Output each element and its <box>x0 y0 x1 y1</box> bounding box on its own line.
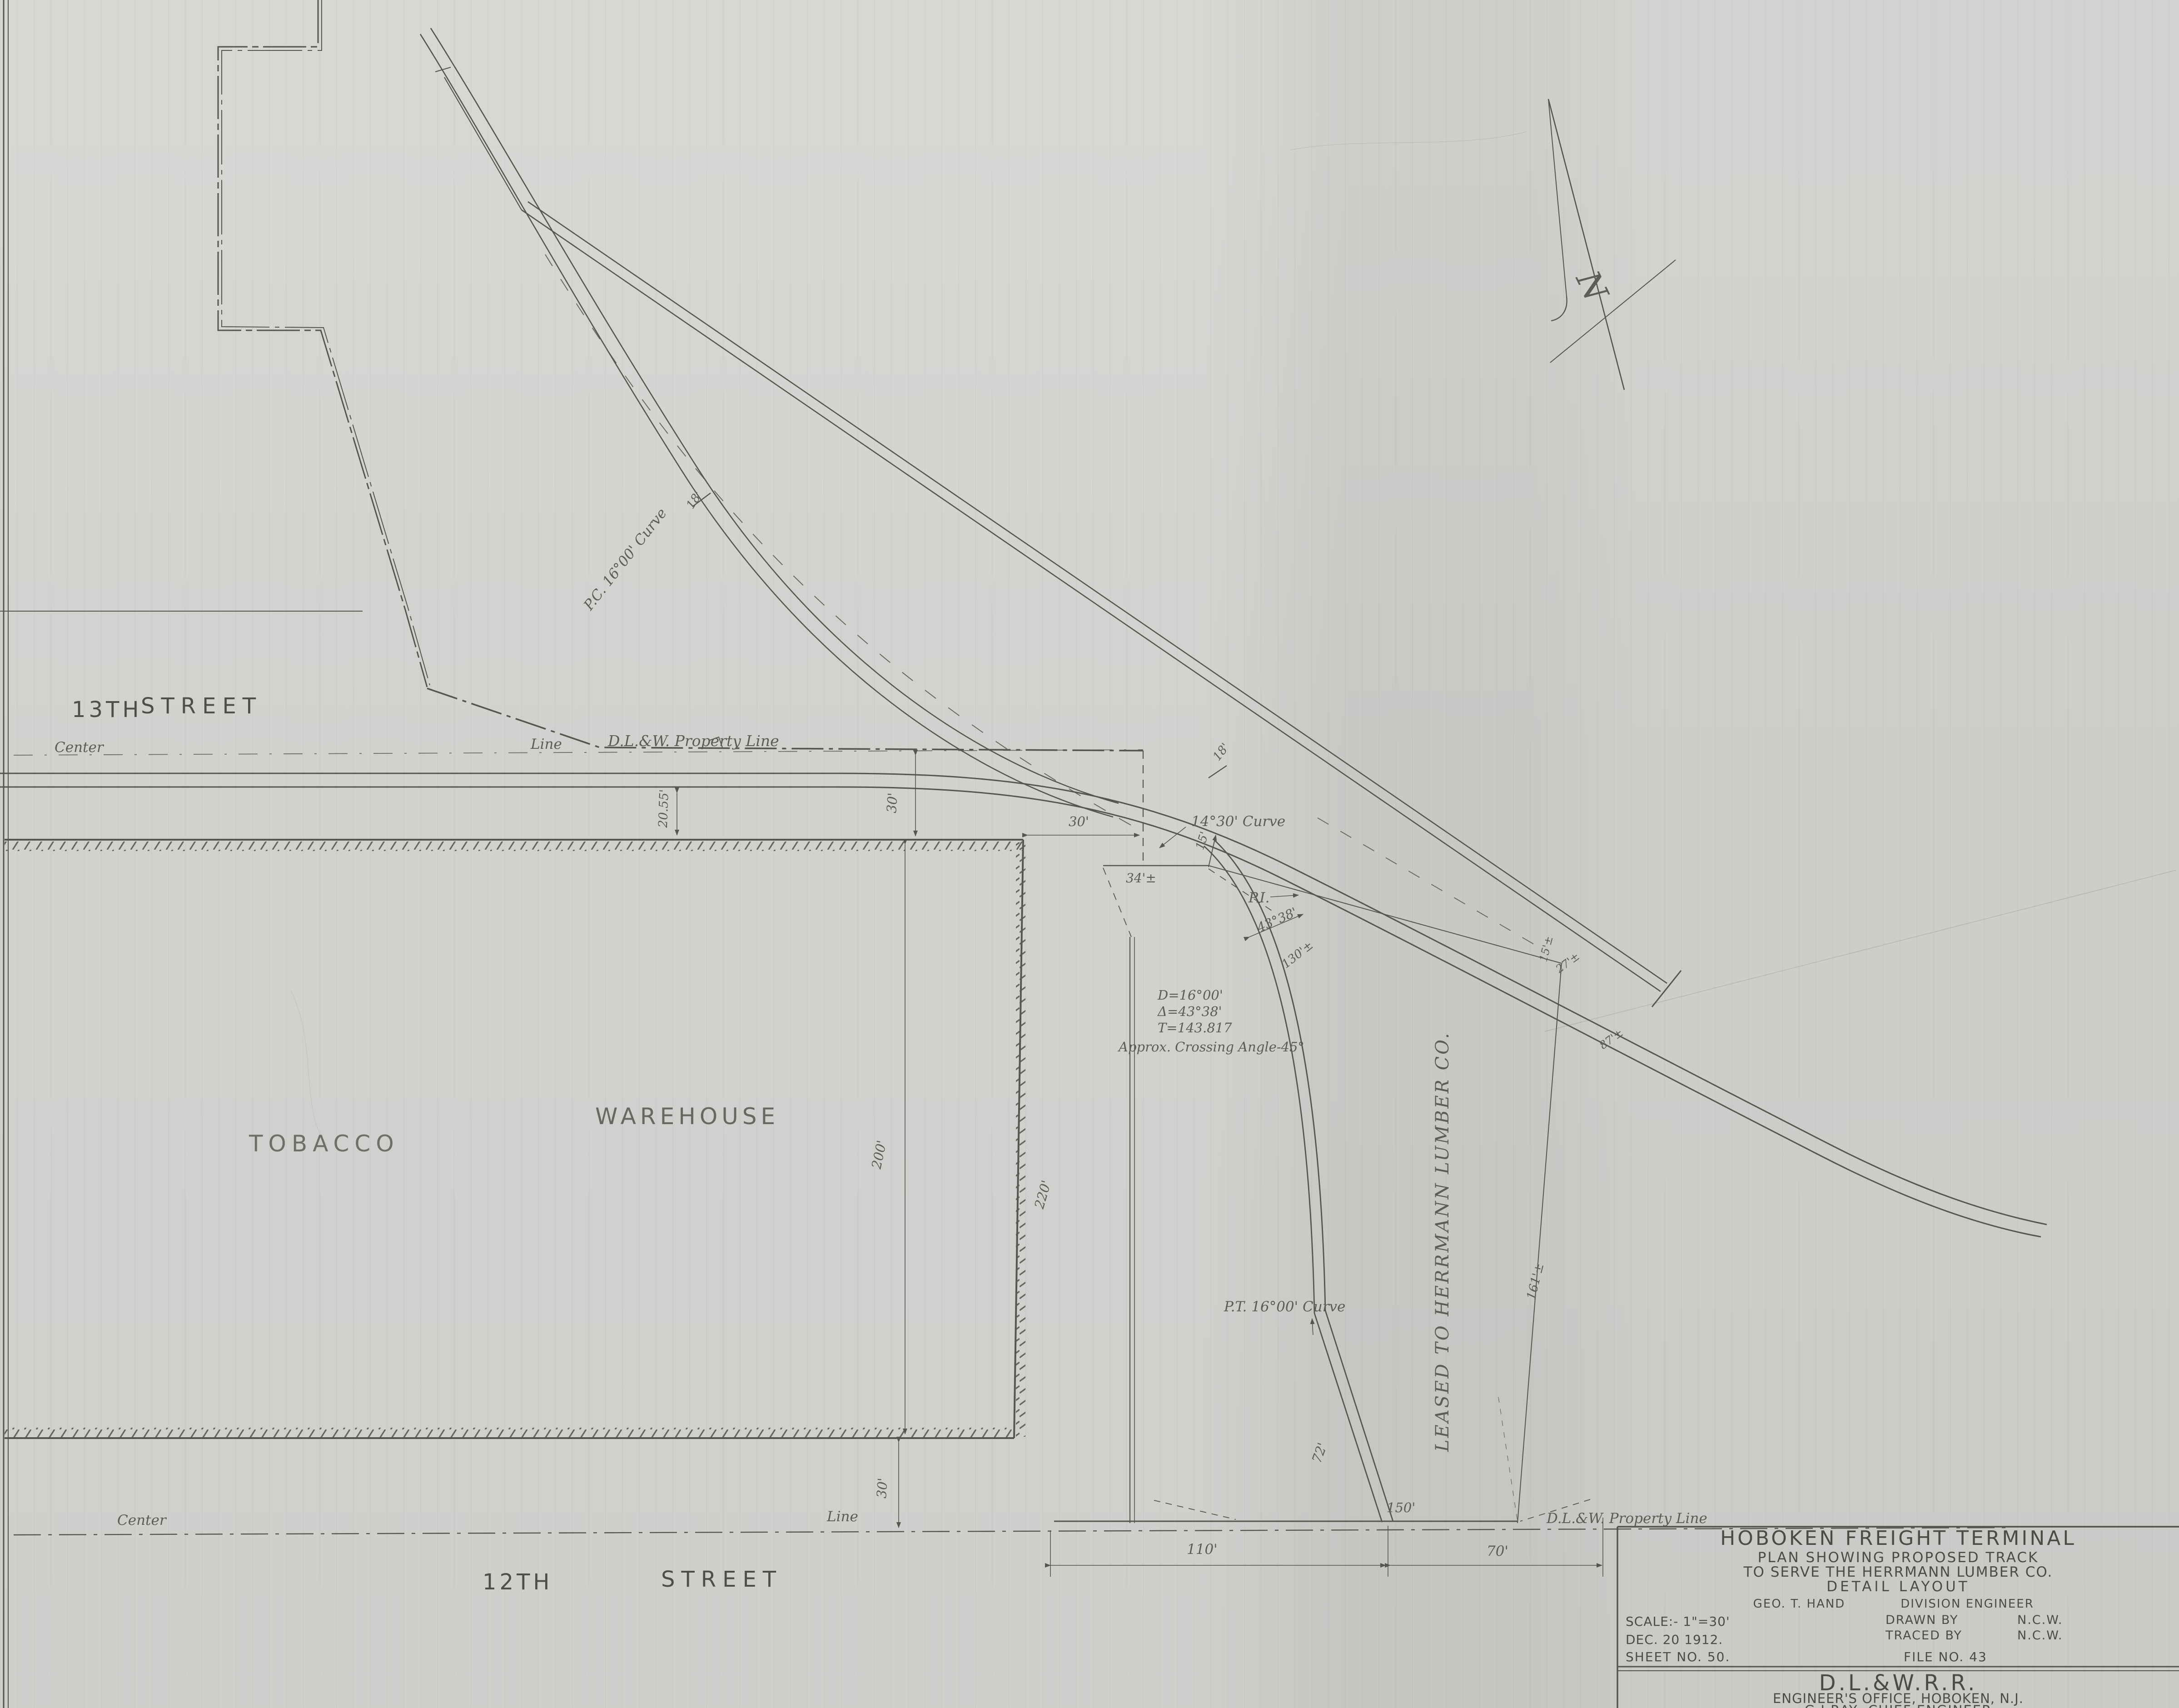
curve-notes: P.C. 16°00' Curve 14°30' Curve P.I. 43°3… <box>580 505 1345 1315</box>
title-engineer-name: GEO. T. HAND <box>1753 1597 1846 1611</box>
warehouse-outline <box>5 840 1025 1438</box>
building-tobacco: TOBACCO <box>249 1130 399 1157</box>
dim-72: 72' <box>1309 1441 1330 1465</box>
title-line-2: PLAN SHOWING PROPOSED TRACK <box>1758 1549 2039 1566</box>
street-12-center: Center <box>117 1512 167 1529</box>
title-traced-by-label: TRACED BY <box>1885 1628 1962 1643</box>
block-boundary <box>218 0 430 687</box>
note-eq-delta: Δ=43°38' <box>1157 1004 1222 1019</box>
title-line-3: TO SERVE THE HERRMANN LUMBER CO. <box>1743 1564 2053 1580</box>
twelfth-street <box>14 1528 2008 1535</box>
dim-20-55: 20.55' <box>656 789 672 828</box>
title-block: HOBOKEN FREIGHT TERMINAL PLAN SHOWING PR… <box>1617 1527 2179 1708</box>
dim-34: 34'± <box>1126 871 1156 886</box>
title-engineer-title: DIVISION ENGINEER <box>1900 1597 2034 1611</box>
dim-30-prop: 30' <box>884 792 900 813</box>
note-crossing-angle: Approx. Crossing Angle-45° <box>1117 1039 1304 1055</box>
note-eq-t: T=143.817 <box>1158 1020 1232 1036</box>
note-eq-d: D=16°00' <box>1157 987 1223 1003</box>
title-date: DEC. 20 1912. <box>1626 1632 1723 1647</box>
property-line-label-top: D.L.&W. Property Line <box>607 732 779 750</box>
dim-15b: 15'± <box>1537 935 1556 963</box>
dim-18-a: 18' <box>684 489 705 512</box>
title-file-no: FILE NO. 43 <box>1904 1649 1987 1664</box>
dim-150: 150' <box>1387 1500 1415 1515</box>
title-line-4: DETAIL LAYOUT <box>1826 1579 1970 1595</box>
title-scale: SCALE:- 1"=30' <box>1626 1614 1730 1629</box>
street-13-number: 13TH <box>72 697 142 722</box>
note-1430-curve: 14°30' Curve <box>1191 813 1285 830</box>
title-traced-by: N.C.W. <box>2017 1628 2063 1643</box>
property-line-label-bottom: D.L.&W. Property Line <box>1546 1510 1707 1527</box>
paper-creases <box>291 132 2176 1145</box>
north-letter: N <box>1568 264 1616 309</box>
plan-drawing: N 13TH STREET Center Line 12TH STREET Ce… <box>0 0 2179 1708</box>
street-13-line: Line <box>530 736 562 752</box>
dim-110: 110' <box>1187 1541 1218 1558</box>
dim-200: 200' <box>868 1139 890 1170</box>
note-pt-curve: P.T. 16°00' Curve <box>1224 1299 1345 1315</box>
title-drawn-by: N.C.W. <box>2017 1613 2063 1627</box>
dim-161: 161'± <box>1524 1262 1547 1301</box>
dim-15: 15' <box>1193 830 1212 852</box>
dim-30-corner: 30' <box>1069 814 1089 829</box>
title-drawn-by-label: DRAWN BY <box>1885 1613 1958 1627</box>
north-arrow: N <box>1548 99 1676 390</box>
lease-note: LEASED TO HERRMANN LUMBER CO. <box>1432 1031 1453 1452</box>
street-13-name: STREET <box>141 693 262 719</box>
sheet-border <box>4 0 8 1708</box>
title-sheet-no: SHEET NO. 50. <box>1626 1649 1730 1664</box>
note-pc-curve: P.C. 16°00' Curve <box>580 505 670 614</box>
building-warehouse: WAREHOUSE <box>595 1103 779 1130</box>
street-12-number: 12TH <box>483 1569 553 1595</box>
dim-18-b: 18' <box>1210 741 1232 763</box>
street-13-center: Center <box>55 739 104 756</box>
title-chief: G.J.RAY CHIEF ENGINEER <box>1805 1703 1992 1708</box>
dim-27: 27'± <box>1553 950 1582 976</box>
lease-boundary <box>1054 751 1590 1523</box>
dimension-labels: 20.55' 30' 30' 34'± 15' 18' 18' 15'± 27'… <box>656 489 1626 1559</box>
dim-220: 220' <box>1031 1179 1054 1211</box>
thirteenth-street <box>0 611 1143 755</box>
dim-70: 70' <box>1487 1543 1508 1559</box>
street-12-name: STREET <box>661 1567 782 1592</box>
title-line-1: HOBOKEN FREIGHT TERMINAL <box>1720 1527 2076 1550</box>
dim-30-bottom: 30' <box>874 1477 891 1499</box>
note-pi: P.I. <box>1248 890 1270 906</box>
street-12-line: Line <box>826 1509 858 1525</box>
dim-130: 130'± <box>1279 939 1316 971</box>
blueprint-sheet: N 13TH STREET Center Line 12TH STREET Ce… <box>0 0 2179 1708</box>
